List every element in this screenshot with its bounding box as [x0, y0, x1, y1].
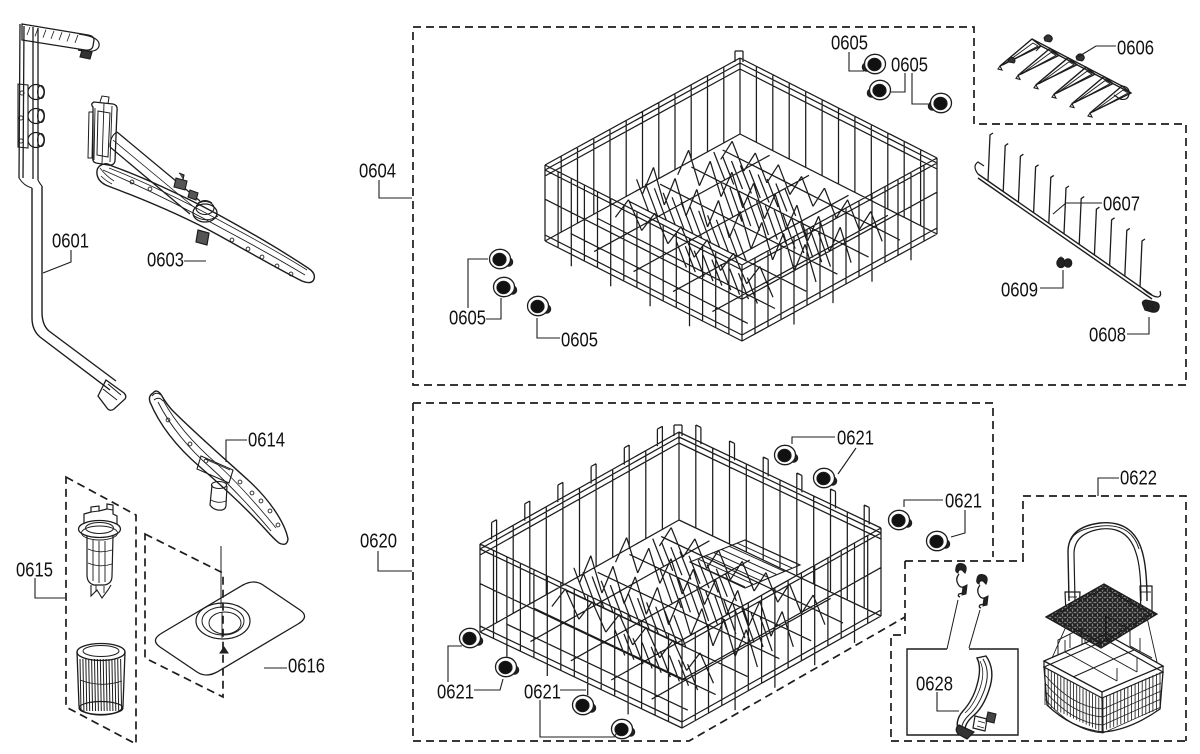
- svg-text:0605: 0605: [561, 330, 598, 352]
- svg-text:0605: 0605: [449, 308, 486, 330]
- svg-text:0604: 0604: [359, 161, 396, 183]
- svg-text:0601: 0601: [52, 231, 89, 253]
- svg-text:0607: 0607: [1103, 194, 1140, 216]
- svg-text:0621: 0621: [437, 682, 474, 704]
- svg-text:0621: 0621: [945, 491, 982, 513]
- svg-text:0608: 0608: [1089, 325, 1126, 347]
- svg-text:0605: 0605: [891, 55, 928, 77]
- svg-text:0621: 0621: [837, 428, 874, 450]
- svg-text:0620: 0620: [360, 531, 397, 553]
- svg-text:0614: 0614: [248, 430, 285, 452]
- svg-text:0606: 0606: [1117, 38, 1154, 60]
- svg-text:0628: 0628: [916, 674, 953, 696]
- svg-text:0605: 0605: [831, 33, 868, 55]
- svg-text:0616: 0616: [288, 656, 325, 678]
- svg-text:0622: 0622: [1120, 468, 1157, 490]
- svg-text:0609: 0609: [1001, 280, 1038, 302]
- svg-text:0621: 0621: [524, 682, 561, 704]
- svg-text:0603: 0603: [147, 250, 184, 272]
